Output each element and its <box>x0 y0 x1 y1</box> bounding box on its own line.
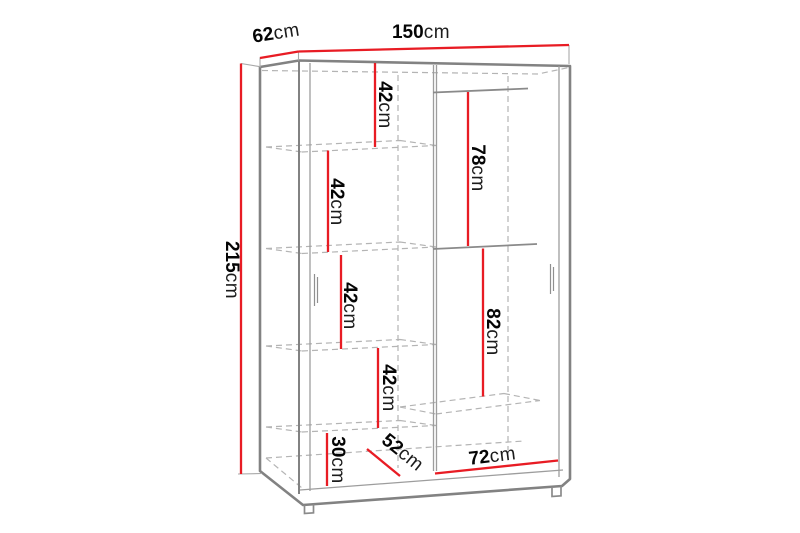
dim-line-depth-62 <box>260 52 299 59</box>
dim-line-width-150 <box>299 45 570 52</box>
wardrobe-dimension-diagram: 62cm 150cm 215cm 42cm 42cm 42cm 42cm 30c… <box>0 0 800 533</box>
dim-label-52: 52cm <box>377 430 427 476</box>
dim-label-height: 215cm <box>221 241 242 299</box>
dimension-labels: 62cm 150cm 215cm 42cm 42cm 42cm 42cm 30c… <box>221 19 517 483</box>
interior-hidden-lines <box>262 68 569 489</box>
shelf-4 <box>266 421 436 433</box>
top-panel-underside <box>262 68 569 75</box>
middle-divider <box>434 65 437 471</box>
shelf-1 <box>266 141 436 153</box>
hanging-rail-upper <box>433 89 528 93</box>
dimension-lines <box>241 45 569 486</box>
dim-label-42-lower: 42cm <box>378 364 399 411</box>
dim-label-82: 82cm <box>482 308 503 355</box>
hanging-rail-lower <box>433 244 537 249</box>
right-column-bottom-shelf <box>400 394 540 415</box>
cabinet-outline <box>260 61 570 506</box>
ext-height-top <box>241 64 261 67</box>
dim-label-42-upper: 42cm <box>326 178 347 225</box>
dim-label-depth: 62cm <box>251 19 301 47</box>
dim-label-78: 78cm <box>467 144 488 191</box>
dim-label-42-top: 42cm <box>374 81 395 128</box>
door-handle-right <box>551 264 554 294</box>
cabinet-structure <box>260 61 570 514</box>
dim-label-42-middle: 42cm <box>339 282 360 329</box>
shelf-3 <box>266 340 436 352</box>
dim-label-30: 30cm <box>327 436 348 483</box>
door-handle-left <box>315 274 318 306</box>
dim-label-width: 150cm <box>392 22 450 43</box>
shelf-2 <box>266 242 436 254</box>
diagram-canvas: 62cm 150cm 215cm 42cm 42cm 42cm 42cm 30c… <box>0 0 800 533</box>
extension-lines <box>238 45 569 474</box>
